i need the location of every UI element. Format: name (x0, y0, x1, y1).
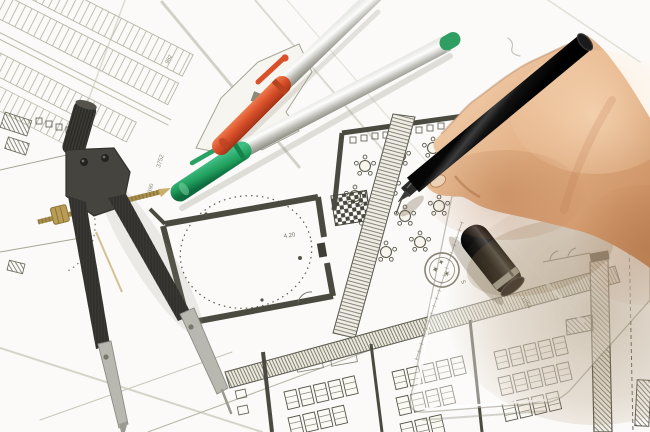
blueprint-scene: 982 4.20 (0, 0, 650, 432)
green-pen-end-plug (447, 40, 453, 44)
photo-canvas: 982 4.20 (0, 0, 650, 432)
